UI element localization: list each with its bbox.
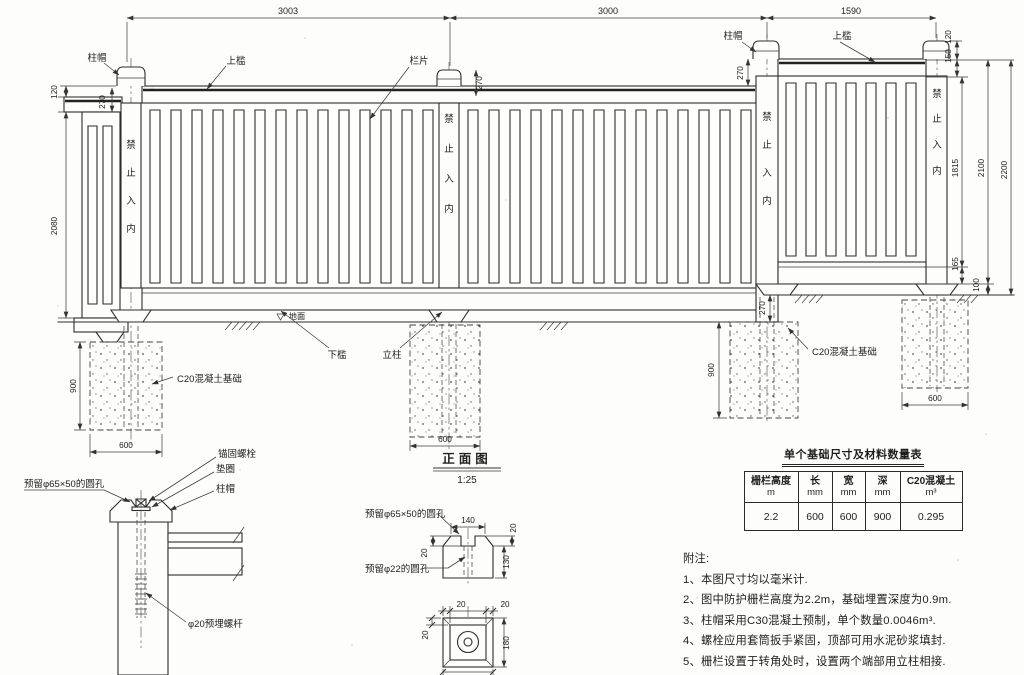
ground-marker-icon (277, 314, 284, 320)
foundations (90, 297, 968, 437)
dim-step-270: 270 (758, 301, 767, 315)
no-entry-char: 止 (126, 167, 136, 179)
no-entry-char: 禁 (126, 140, 136, 151)
header-unit: mm (869, 487, 897, 498)
label-bottom-rail: 下槛 (327, 349, 347, 361)
note-item: 4、螺栓应用套筒扳手紧固，顶部可用水泥砂浆填封. (683, 631, 952, 652)
dim-cap-130: 130 (502, 555, 511, 569)
table-header-cell: 宽mm (832, 472, 865, 503)
dim-600-f2: 600 (438, 435, 452, 444)
header-unit: mm (836, 487, 862, 498)
no-entry-char: 禁 (932, 89, 942, 100)
label-post: 立柱 (382, 349, 402, 361)
no-entry-char: 止 (444, 143, 454, 155)
no-entry-char: 内 (762, 195, 772, 207)
no-entry-char: 内 (932, 165, 942, 177)
header-label: 深 (869, 476, 897, 487)
table-cell: 0.295 (900, 503, 962, 531)
no-entry-char: 禁 (762, 112, 772, 123)
no-entry-char: 内 (444, 203, 454, 215)
header-unit: mm (802, 487, 829, 498)
dim-panel-2080: 2080 (50, 216, 59, 235)
top-rails (142, 59, 926, 103)
cap-plan-detail: 20 20 20 180 (421, 600, 511, 675)
label-hole22: 预留φ22的圆孔 (365, 563, 430, 575)
railing-slats (150, 83, 916, 283)
dim-cap-20-left: 20 (420, 548, 429, 558)
dim-900-right: 900 (707, 363, 716, 377)
dim-plan-20-b: 20 (500, 600, 510, 609)
no-entry-text-posts: 禁 止 入 内 禁 止 入 内 禁 止 入 内 禁 止 入 内 (126, 89, 942, 235)
label-top-rail-left: 上槛 (226, 55, 246, 67)
no-entry-char: 内 (126, 223, 136, 235)
table-cell: 2.2 (744, 503, 798, 531)
dim-2100: 2100 (977, 158, 986, 177)
dim-2200: 2200 (1000, 160, 1009, 179)
label-post-cap-left: 柱帽 (87, 52, 106, 64)
view-scale: 1:25 (457, 475, 477, 486)
dim-120-right: 120 (944, 30, 953, 44)
no-entry-char: 止 (762, 139, 772, 151)
header-label: C20混凝土 (904, 476, 959, 487)
dim-plan-20-a: 20 (456, 600, 466, 609)
label-post-cap-right: 柱帽 (723, 30, 742, 42)
label-hole65-detail1: 预留φ65×50的圆孔 (24, 478, 105, 490)
label-washer: 垫圈 (216, 463, 235, 475)
label-ground: 地面 (289, 311, 305, 321)
dim-cap-270-mid: 270 (475, 76, 484, 90)
dim-600-f1: 600 (119, 441, 133, 450)
header-label: 长 (802, 476, 829, 487)
note-item: 5、栅栏设置于转角处时，设置两个端部用立柱相接. (683, 652, 952, 673)
dim-bay2: 3000 (598, 6, 618, 16)
note-item: 2、图中防护栅栏高度为2.2m，基础埋置深度为0.9m. (683, 590, 952, 611)
end-panel (64, 97, 128, 342)
table-cell: 600 (798, 503, 832, 531)
dim-600-f4: 600 (928, 394, 942, 403)
dim-rail-height: 120 (50, 85, 59, 99)
foundation-quantity-table-block: 单个基础尺寸及材料数量表 栅栏高度m 长mm 宽mm 深mm C20混凝土m³ … (740, 446, 966, 531)
note-item: 3、柱帽采用C30混凝土预制，单个数量0.0046m³. (683, 611, 952, 632)
header-label: 栅栏高度 (748, 476, 795, 487)
label-rail-panel: 栏片 (409, 55, 428, 67)
posts (121, 76, 947, 322)
no-entry-char: 入 (762, 168, 772, 179)
note-item: 1、本图尺寸均以毫米计. (683, 570, 952, 591)
anchor-bolt-detail: 预留φ65×50的圆孔 锚固螺栓 垫圈 柱帽 φ20预埋螺杆 (24, 448, 257, 675)
scanned-drawing-page: { "drawing": { "view_title": "正面图", "vie… (0, 0, 1024, 675)
table-cell: 900 (865, 503, 900, 531)
header-label: 宽 (836, 476, 862, 487)
table-header-cell: C20混凝土m³ (900, 472, 962, 503)
label-embed-rod: φ20预埋螺杆 (188, 618, 243, 630)
label-hole65-detail2: 预留φ65×50的圆孔 (365, 508, 446, 520)
label-foundation-left: C20混凝土基础 (177, 373, 242, 385)
no-entry-char: 止 (932, 113, 942, 125)
dim-cap-20-right: 20 (509, 523, 518, 533)
dim-165: 165 (951, 257, 960, 271)
table-header-cell: 栅栏高度m (744, 472, 798, 503)
notes-block: 附注: 1、本图尺寸均以毫米计. 2、图中防护栅栏高度为2.2m，基础埋置深度为… (683, 549, 952, 673)
no-entry-char: 入 (126, 196, 136, 207)
label-top-rail-right: 上槛 (832, 30, 852, 42)
dim-150: 150 (944, 49, 953, 63)
notes-title: 附注: (683, 549, 952, 570)
dim-1815: 1815 (951, 158, 960, 177)
bottom-rails (111, 262, 958, 322)
dim-cap-270-left: 270 (98, 95, 107, 109)
table-header-row: 栅栏高度m 长mm 宽mm 深mm C20混凝土m³ (744, 472, 962, 503)
dim-100: 100 (972, 278, 981, 292)
table-header-cell: 深mm (865, 472, 900, 503)
table-header-cell: 长mm (798, 472, 832, 503)
header-unit: m³ (904, 487, 959, 498)
dim-bay1: 3003 (278, 6, 298, 16)
label-cap-detail1: 柱帽 (216, 483, 235, 495)
table-data-row: 2.2 600 600 900 0.295 (744, 503, 962, 531)
elevation-view: 3003 3000 1590 柱帽 上槛 栏片 柱帽 上槛 下槛 立柱 地面 C… (50, 6, 1014, 486)
cap-front-detail: 140 20 130 20 预留φ65×50的圆孔 预留φ22的圆孔 (365, 508, 518, 584)
table-cell: 600 (832, 503, 865, 531)
label-foundation-right: C20混凝土基础 (812, 346, 877, 358)
dim-cap-270-right: 270 (736, 66, 745, 80)
dim-cap-140: 140 (461, 516, 475, 525)
dim-plan-180: 180 (502, 636, 511, 650)
view-title-block: 正面图 1:25 (433, 452, 501, 486)
dim-bay3: 1590 (841, 6, 861, 16)
dim-900-left: 900 (69, 379, 78, 393)
view-title: 正面图 (442, 452, 492, 466)
no-entry-char: 入 (932, 140, 942, 151)
table-title: 单个基础尺寸及材料数量表 (782, 446, 924, 467)
label-anchor-bolt: 锚固螺栓 (218, 448, 257, 460)
no-entry-char: 禁 (444, 114, 454, 125)
foundation-quantity-table: 栅栏高度m 长mm 宽mm 深mm C20混凝土m³ 2.2 600 600 9… (744, 471, 963, 531)
dim-plan-20-c: 20 (421, 630, 430, 640)
header-unit: m (748, 487, 795, 498)
no-entry-char: 入 (444, 174, 454, 185)
